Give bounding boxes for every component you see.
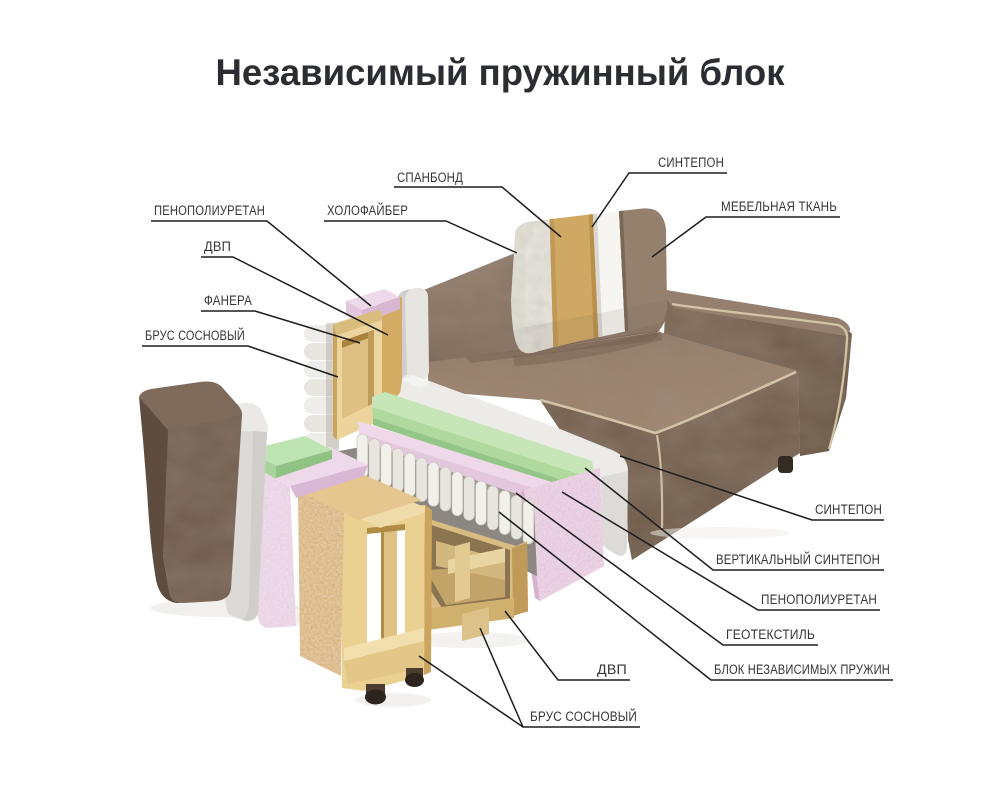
svg-text:СИНТЕПОН: СИНТЕПОН <box>658 155 724 170</box>
svg-text:ДВП: ДВП <box>597 662 627 677</box>
svg-text:ДВП: ДВП <box>204 239 231 254</box>
svg-text:ВЕРТИКАЛЬНЫЙ СИНТЕПОН: ВЕРТИКАЛЬНЫЙ СИНТЕПОН <box>716 552 880 567</box>
svg-text:ХОЛОФАЙБЕР: ХОЛОФАЙБЕР <box>327 203 408 218</box>
svg-text:ГЕОТЕКСТИЛЬ: ГЕОТЕКСТИЛЬ <box>726 627 815 642</box>
svg-text:БРУС СОСНОВЫЙ: БРУС СОСНОВЫЙ <box>145 328 245 343</box>
svg-text:МЕБЕЛЬНАЯ ТКАНЬ: МЕБЕЛЬНАЯ ТКАНЬ <box>721 199 837 214</box>
svg-text:ПЕНОПОЛИУРЕТАН: ПЕНОПОЛИУРЕТАН <box>761 592 877 607</box>
svg-text:ФАНЕРА: ФАНЕРА <box>204 293 252 308</box>
svg-text:Независимый пружинный блок: Независимый пружинный блок <box>216 51 785 93</box>
svg-text:БЛОК НЕЗАВИСИМЫХ ПРУЖИН: БЛОК НЕЗАВИСИМЫХ ПРУЖИН <box>714 662 890 677</box>
svg-text:СПАНБОНД: СПАНБОНД <box>397 170 463 185</box>
svg-text:СИНТЕПОН: СИНТЕПОН <box>815 502 882 517</box>
svg-text:ПЕНОПОЛИУРЕТАН: ПЕНОПОЛИУРЕТАН <box>154 203 265 218</box>
svg-text:БРУС СОСНОВЫЙ: БРУС СОСНОВЫЙ <box>530 709 637 724</box>
